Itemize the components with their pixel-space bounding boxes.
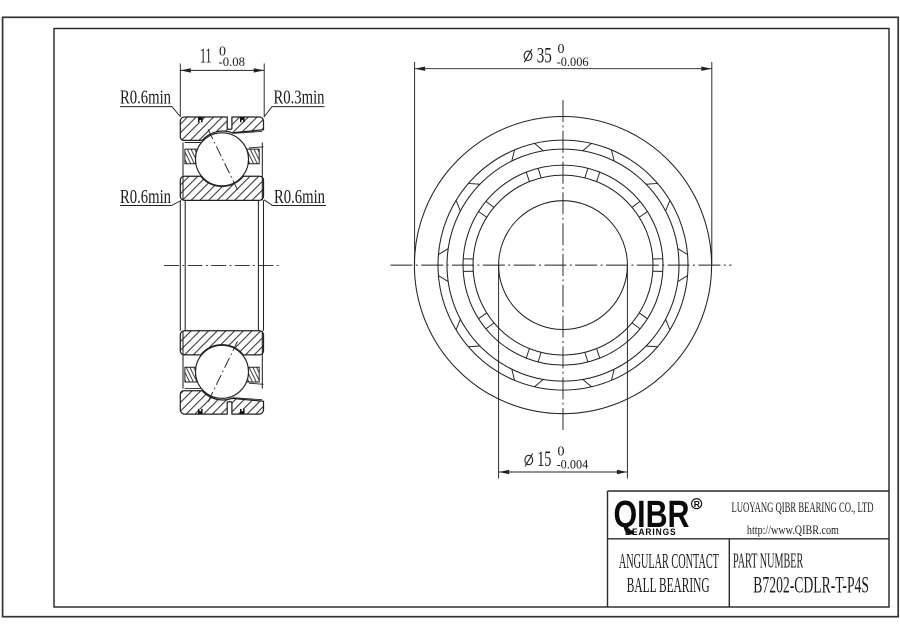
svg-text:-0.08: -0.08 (219, 55, 246, 69)
svg-text:B7202-CDLR-T-P4S: B7202-CDLR-T-P4S (753, 573, 869, 598)
svg-text:R0.6min: R0.6min (120, 86, 171, 108)
svg-text:http://www.QIBR.com: http://www.QIBR.com (747, 522, 839, 537)
svg-text:ANGULAR CONTACT: ANGULAR CONTACT (619, 549, 719, 573)
svg-text:-0.004: -0.004 (557, 458, 589, 472)
svg-text:11: 11 (200, 44, 212, 68)
svg-text:BEARINGS: BEARINGS (625, 527, 677, 538)
svg-text:R0.6min: R0.6min (120, 186, 171, 208)
svg-text:R0.6min: R0.6min (274, 186, 325, 208)
svg-text:15: 15 (537, 446, 551, 471)
svg-text:R: R (694, 499, 700, 509)
svg-text:35: 35 (537, 43, 552, 68)
svg-text:-0.006: -0.006 (557, 55, 589, 69)
svg-text:PART NUMBER: PART NUMBER (733, 549, 803, 573)
svg-text:R0.3min: R0.3min (274, 86, 325, 108)
svg-text:BALL BEARING: BALL BEARING (627, 573, 710, 597)
svg-text:LUOYANG QIBR BEARING CO., LTD: LUOYANG QIBR BEARING CO., LTD (732, 500, 874, 516)
